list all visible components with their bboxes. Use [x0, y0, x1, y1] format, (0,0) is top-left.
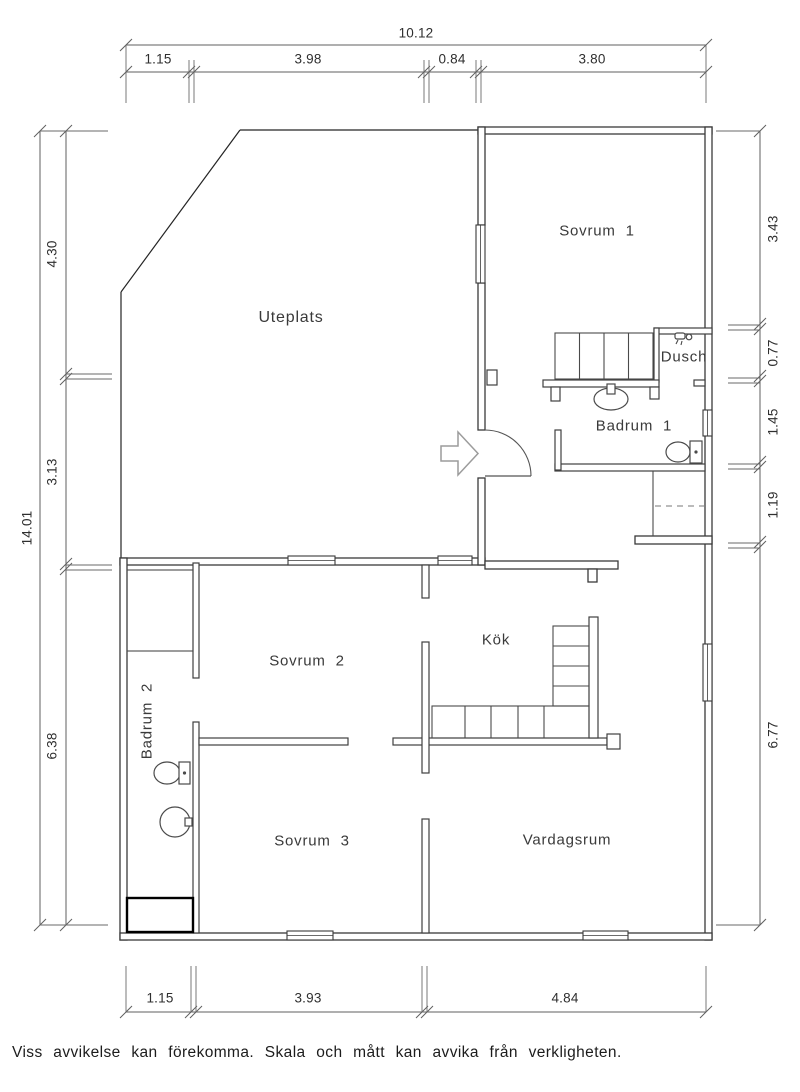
room-label-uteplats: Uteplats — [258, 309, 323, 327]
window-symbol — [703, 644, 712, 701]
room-label-badrum1: Badrum 1 — [596, 418, 672, 435]
sink-icon — [160, 807, 192, 837]
outer-walls — [120, 127, 712, 940]
entrance-arrow-icon — [441, 432, 478, 475]
sink-icon — [594, 384, 628, 410]
dim-right-seg-4: 1.19 — [766, 491, 781, 518]
window-symbol — [476, 225, 485, 283]
window-symbol — [703, 410, 712, 436]
room-label-sovrum3: Sovrum 3 — [274, 833, 350, 850]
dim-left-seg-1: 4.30 — [45, 240, 60, 267]
toilet-icon — [154, 762, 190, 784]
dim-left-overall: 14.01 — [20, 511, 35, 546]
wardrobe — [555, 333, 653, 379]
floor-plan-canvas — [0, 0, 800, 1092]
room-label-kok: Kök — [482, 632, 510, 649]
floorplan-page: Uteplats Sovrum 1 Dusch Badrum 1 Sovrum … — [0, 0, 800, 1092]
windows — [287, 225, 712, 940]
toilet-icon — [666, 441, 702, 463]
dim-top-seg-1: 1.15 — [144, 52, 171, 67]
window-symbol — [583, 931, 628, 940]
shower-base-icon — [127, 898, 193, 932]
room-label-sovrum2: Sovrum 2 — [269, 653, 345, 670]
dim-top-overall: 10.12 — [399, 26, 434, 41]
entrance — [441, 430, 531, 476]
shower-head-icon — [675, 333, 692, 345]
room-label-badrum2: Badrum 2 — [139, 683, 156, 759]
dim-bottom-seg-2: 3.93 — [294, 991, 321, 1006]
window-symbol — [287, 931, 333, 940]
room-label-sovrum1: Sovrum 1 — [559, 223, 635, 240]
dim-bottom-seg-3: 4.84 — [551, 991, 578, 1006]
patio-boundary — [121, 130, 478, 558]
closet — [653, 471, 704, 536]
disclaimer-text: Viss avvikelse kan förekomma. Skala och … — [12, 1044, 622, 1062]
dimension-lines — [34, 39, 766, 1018]
staircase — [432, 626, 589, 738]
dim-top-seg-4: 3.80 — [578, 52, 605, 67]
dim-top-seg-2: 3.98 — [294, 52, 321, 67]
dim-right-seg-2: 0.77 — [766, 339, 781, 366]
dim-top-seg-3: 0.84 — [438, 52, 465, 67]
dim-left-seg-3: 6.38 — [45, 732, 60, 759]
door-swing-icon — [485, 430, 531, 476]
dim-left-seg-2: 3.13 — [45, 458, 60, 485]
dim-right-seg-5: 6.77 — [766, 721, 781, 748]
window-symbol — [288, 556, 335, 565]
dim-bottom-seg-1: 1.15 — [146, 991, 173, 1006]
room-label-vardagsrum: Vardagsrum — [523, 832, 612, 849]
room-label-dusch: Dusch — [661, 349, 708, 366]
window-symbol — [438, 556, 472, 565]
dim-right-seg-1: 3.43 — [766, 215, 781, 242]
closet — [127, 570, 193, 651]
dim-right-seg-3: 1.45 — [766, 408, 781, 435]
